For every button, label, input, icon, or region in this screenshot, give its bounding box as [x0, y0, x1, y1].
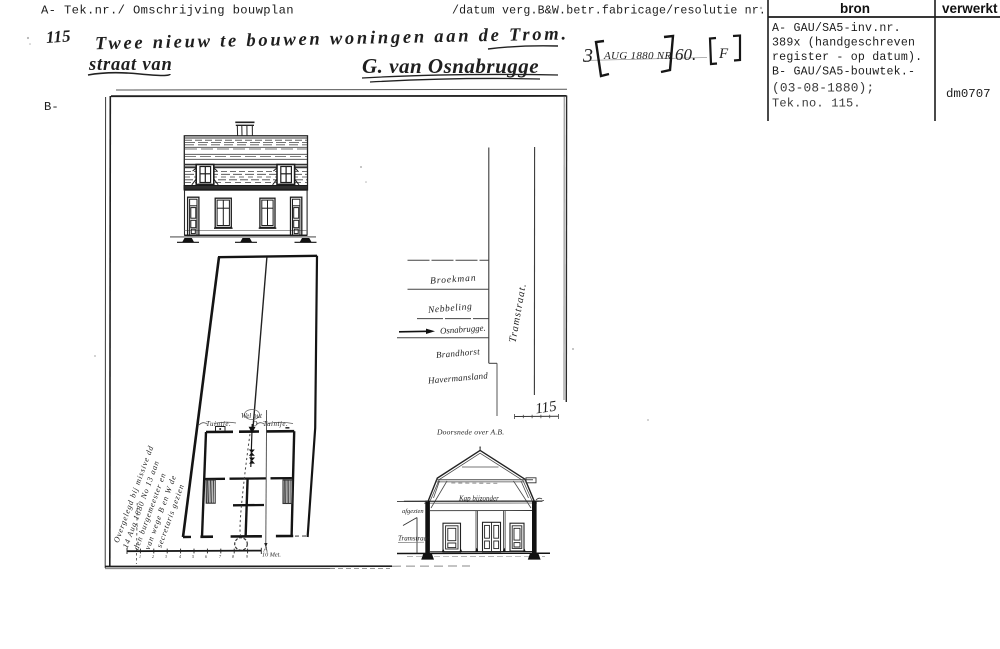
svg-text:60.: 60. — [675, 45, 696, 64]
svg-text:(03-08-1880);: (03-08-1880); — [772, 81, 874, 96]
svg-text:389x (handgeschreven: 389x (handgeschreven — [772, 37, 915, 50]
svg-text:Tramstraat: Tramstraat — [398, 535, 430, 543]
svg-text:F: F — [718, 46, 729, 62]
svg-text:straat van: straat van — [88, 55, 173, 75]
svg-text:B-: B- — [44, 100, 59, 114]
svg-text:9: 9 — [246, 554, 248, 559]
svg-text:3: 3 — [165, 554, 167, 559]
svg-text:register - op datum).: register - op datum). — [772, 51, 922, 64]
svg-text:AUG 1880 NR: AUG 1880 NR — [603, 50, 671, 62]
svg-text:2: 2 — [152, 554, 154, 559]
svg-text:115: 115 — [45, 26, 71, 47]
svg-text:B- GAU/SA5-bouwtek.-: B- GAU/SA5-bouwtek.- — [772, 66, 915, 79]
svg-text:5: 5 — [192, 554, 194, 559]
svg-text:Tek.no. 115.: Tek.no. 115. — [772, 97, 861, 111]
svg-text:A- Tek.nr./ Omschrijving bouwp: A- Tek.nr./ Omschrijving bouwplan — [41, 4, 294, 18]
svg-text:6: 6 — [205, 554, 207, 559]
svg-text:bron: bron — [840, 1, 870, 16]
svg-text:afgezien: afgezien — [402, 508, 424, 515]
svg-text:10 Met.: 10 Met. — [262, 552, 281, 559]
svg-text:Kap bijzonder: Kap bijzonder — [458, 494, 499, 502]
svg-text:115: 115 — [534, 399, 558, 418]
svg-text:Doorsnede over A.B.: Doorsnede over A.B. — [436, 428, 504, 437]
svg-text:3: 3 — [582, 45, 593, 67]
svg-text:1: 1 — [139, 554, 141, 559]
svg-text:verwerkt: verwerkt — [942, 1, 998, 16]
svg-text:8: 8 — [232, 554, 234, 559]
svg-text:dm0707: dm0707 — [946, 87, 991, 101]
svg-text:/datum verg.B&W.betr.fabricage: /datum verg.B&W.betr.fabricage/resolutie… — [452, 5, 766, 18]
svg-text:4: 4 — [179, 554, 181, 559]
svg-text:A- GAU/SA5-inv.nr.: A- GAU/SA5-inv.nr. — [772, 22, 901, 35]
